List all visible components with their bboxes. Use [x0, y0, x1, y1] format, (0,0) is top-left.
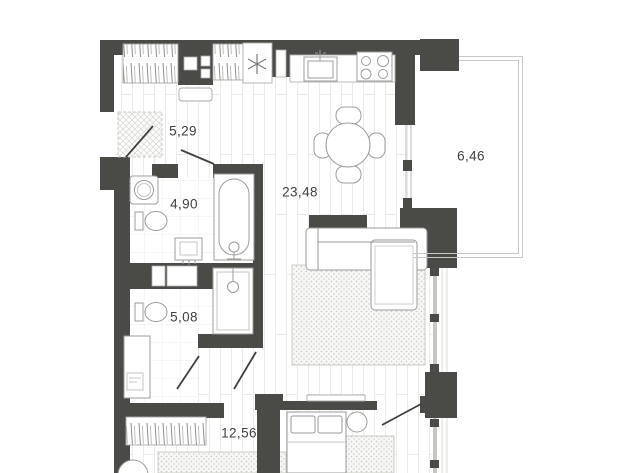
bedside-table: [347, 412, 367, 432]
cooktop-icon: [357, 52, 392, 81]
room-area-label-kitchen-living-room: 23,48: [282, 185, 318, 200]
room-area-label-bedroom-corridor: 12,56: [221, 426, 257, 441]
room-area-label-balcony: 6,46: [457, 149, 485, 164]
extractor-fan-icon: [243, 43, 272, 83]
toilet-icon: [135, 212, 167, 231]
bedroom-rug: [345, 436, 394, 473]
vanity-washbasin-icon: [124, 336, 150, 398]
dining-chair-right: [368, 133, 385, 158]
toilet-2-icon: [135, 303, 167, 322]
dining-chair-top: [336, 107, 361, 124]
wall-shelf: [307, 395, 365, 401]
room-area-label-hallway: 5,29: [169, 124, 197, 139]
double-bed: [287, 412, 346, 473]
hallway-wardrobe: [123, 44, 178, 83]
dining-table: [326, 123, 370, 167]
floor-plan-drawing: [0, 0, 640, 473]
hallway-wardrobe-2: [213, 44, 243, 80]
doormat: [118, 112, 162, 157]
room-area-label-shower-room: 5,08: [170, 310, 198, 325]
bench: [179, 88, 212, 101]
corridor-wardrobe: [126, 417, 206, 445]
tv-console: [309, 215, 367, 228]
room-area-label-bathroom: 4,90: [170, 197, 198, 212]
floor-plan: 5,29 4,90 23,48 6,46 5,08 12,56: [0, 0, 640, 473]
pillow: [291, 416, 315, 433]
dining-chair-bottom: [336, 166, 361, 183]
bathtub-icon: [214, 174, 254, 260]
shower-cabin-icon: [213, 268, 253, 334]
pillow: [318, 416, 342, 433]
washing-machine-icon: [130, 176, 158, 204]
